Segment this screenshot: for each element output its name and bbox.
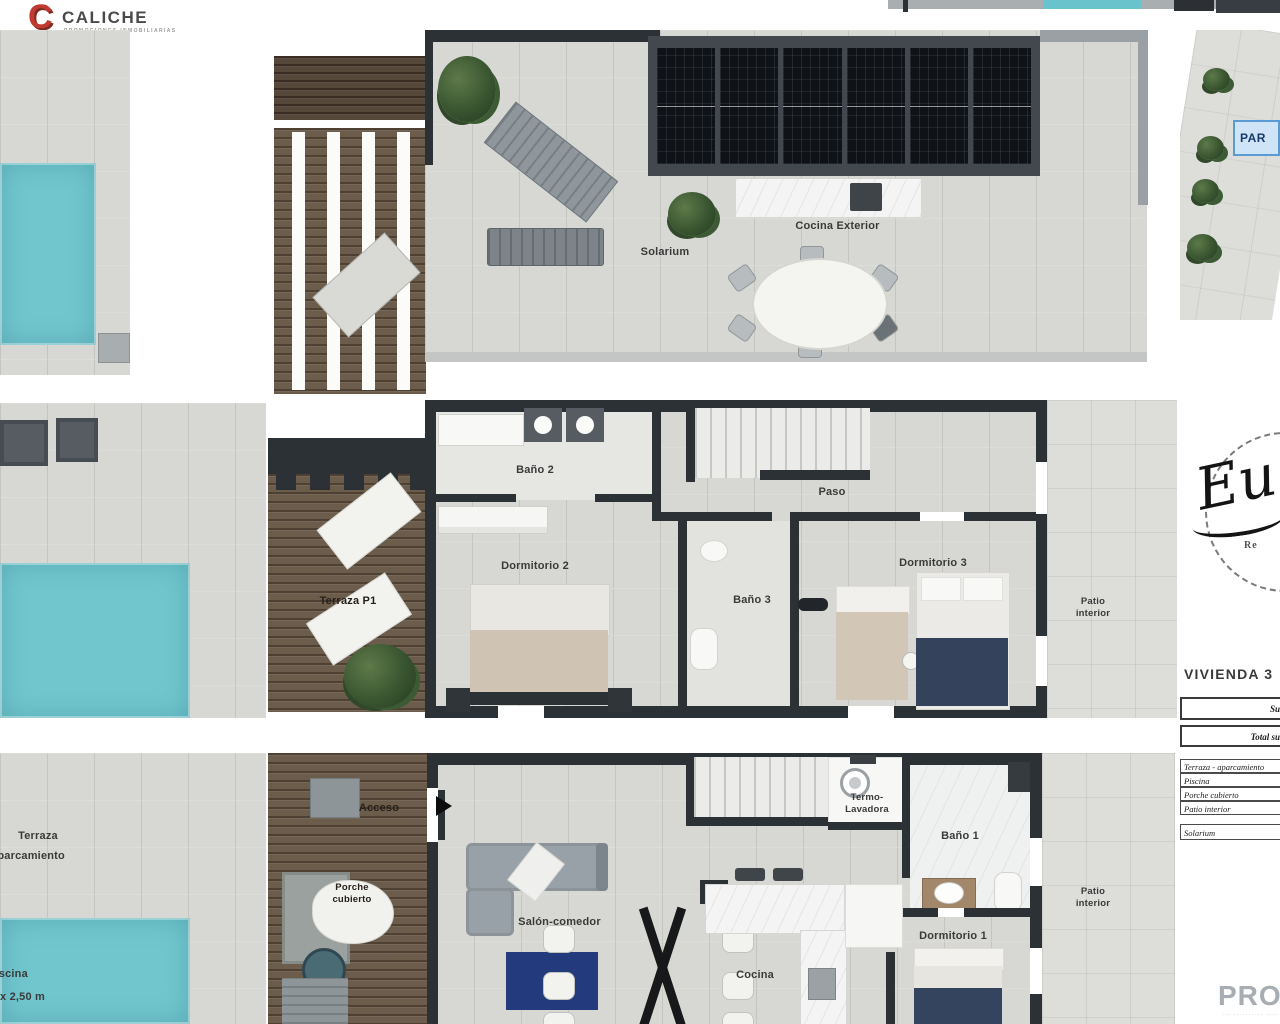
kitchen-appliance	[808, 968, 836, 1000]
bedroom2-label: Dormitorio 2	[485, 560, 585, 574]
gf-wall	[902, 908, 1030, 917]
roof-pool	[0, 163, 96, 345]
roof-wall-top	[425, 30, 660, 42]
bath2-shower	[438, 414, 524, 446]
gf-patio-door	[1030, 838, 1042, 886]
nightstand	[446, 688, 470, 712]
bed2-blanket	[470, 630, 608, 694]
roof-oval-table	[752, 258, 888, 350]
roof-plant	[438, 56, 496, 122]
kitchen-cabinet	[845, 884, 903, 948]
terrace-p1-label: Terraza P1	[303, 595, 393, 609]
gf-wall	[902, 757, 910, 829]
bed3-single-pillow	[836, 586, 910, 614]
boiler	[850, 755, 876, 764]
bath1-toilet	[994, 872, 1022, 912]
bath2-sink-basin	[576, 416, 594, 434]
ff-pool	[0, 563, 190, 718]
bedroom1-label: Dormitorio 1	[908, 930, 998, 944]
ff-wall-left	[425, 400, 436, 718]
ff-stair-wall	[686, 412, 695, 482]
ff-window	[848, 706, 894, 718]
gf-patio-door	[1030, 948, 1042, 994]
kitchen-counter	[705, 884, 845, 934]
ff-window	[498, 706, 544, 718]
pergola-slat	[327, 132, 340, 390]
ff-patio-label: Patio interior	[1058, 596, 1128, 620]
bush	[1197, 136, 1224, 160]
bedroom2-closet	[438, 506, 548, 534]
gf-wall	[886, 952, 895, 1024]
sliver-block	[1174, 0, 1214, 11]
ff-patio-door	[1036, 462, 1047, 514]
living-label: Salón-comedor	[502, 916, 617, 930]
ac-unit	[0, 420, 48, 466]
gf-patio-label: Patio interior	[1058, 886, 1128, 910]
dining-chair	[722, 1012, 754, 1024]
dining-chair	[543, 972, 575, 1000]
ff-wall	[678, 512, 687, 708]
outdoor-kitchen-label: Cocina Exterior	[775, 220, 900, 234]
solar-panel	[720, 48, 778, 164]
floorplan-sheet: C CALICHE PROMOCIONES INMOBILIARIAS PAR	[0, 0, 1280, 1024]
ff-wall	[595, 494, 654, 502]
roof-wall-left	[425, 30, 433, 165]
access-arrow-icon	[436, 796, 452, 816]
site-plan-fragment	[1180, 30, 1280, 320]
solarium-label: Solarium	[615, 246, 715, 260]
deck-plant	[344, 644, 416, 708]
washer-drum	[849, 777, 861, 789]
bath1-basin	[934, 882, 964, 904]
parapet-tooth	[310, 474, 330, 490]
area-row: Patio interior	[1180, 801, 1280, 815]
bed2-headboard	[470, 692, 608, 705]
bed2-sheet	[470, 584, 610, 636]
roof-wall-right	[1138, 30, 1148, 205]
sliver-block	[1216, 0, 1280, 13]
roof-plant	[668, 192, 716, 236]
sliver-pool	[1043, 0, 1141, 9]
pergola-roof-deck	[274, 56, 426, 120]
dining-chair	[543, 1012, 575, 1024]
area-row: Terraza - aparcamiento	[1180, 759, 1280, 773]
ff-wall	[652, 412, 661, 520]
sofa-armrest	[596, 843, 608, 891]
bush	[1192, 179, 1219, 203]
porch-bbq	[282, 978, 348, 1024]
bed3-single-body	[836, 612, 908, 700]
solar-panel	[657, 48, 715, 164]
bedroom3-bench	[798, 598, 828, 611]
solar-panel	[973, 48, 1031, 164]
bath3-toilet	[690, 628, 718, 670]
outdoor-kitchen-sink	[850, 183, 882, 211]
gf-stair-wall	[686, 817, 828, 826]
bedroom3-label: Dormitorio 3	[883, 557, 983, 571]
ff-wall	[436, 494, 516, 502]
ff-stair-rail	[760, 470, 870, 480]
gf-wall	[902, 820, 910, 878]
unit-title: VIVIENDA 3	[1184, 666, 1273, 682]
roof-wall-bottom	[425, 352, 1147, 362]
bath2-sink-basin	[534, 416, 552, 434]
solar-panel	[783, 48, 841, 164]
kitchen-stool	[773, 868, 803, 881]
solar-panel	[847, 48, 905, 164]
kitchen-label: Cocina	[726, 969, 784, 983]
pool-name-label: Piscina	[0, 968, 50, 982]
nightstand	[608, 688, 632, 712]
parapet-tooth	[276, 474, 296, 490]
gf-terrace-label-1: Terraza	[6, 830, 70, 844]
ff-patio-door	[1036, 636, 1047, 686]
area-row: Porche cubierto	[1180, 787, 1280, 801]
bed3-pillow	[963, 577, 1003, 601]
pergola-slat	[292, 132, 305, 390]
bath2-label: Baño 2	[490, 464, 580, 478]
bush	[1203, 68, 1230, 91]
pergola	[266, 50, 434, 362]
summary-box-1: Su	[1180, 697, 1280, 720]
ff-patio	[1047, 400, 1177, 718]
brand-name: CALICHE	[62, 8, 148, 28]
bush	[1187, 234, 1218, 261]
summary-box-1-text: Su	[1270, 704, 1280, 714]
ff-wall	[790, 512, 799, 708]
access-label: Acceso	[348, 802, 410, 816]
footer-brand: PROP	[1218, 980, 1280, 1012]
roof-equipment	[98, 333, 130, 363]
summary-box-2-text: Total su	[1251, 732, 1280, 742]
ff-deck-parapet	[268, 438, 432, 474]
bed1-sheet	[914, 966, 1002, 990]
driveway	[1180, 30, 1280, 320]
gf-door-gap	[938, 908, 964, 917]
gf-wall	[828, 822, 902, 830]
roof-bench	[487, 228, 604, 266]
gf-terrace-label-2: aparcamiento	[0, 850, 78, 864]
bath3-label: Baño 3	[726, 594, 778, 608]
solarium-row: Solarium	[1180, 824, 1280, 840]
gf-stairs	[694, 757, 828, 817]
porch-label: Porche cubierto	[316, 882, 388, 906]
gf-stair-wall	[686, 757, 694, 826]
bath1-label: Baño 1	[933, 830, 987, 844]
ff-door-gap	[920, 512, 964, 521]
roof-wall-right-top	[1040, 30, 1148, 42]
bed1-blanket	[914, 988, 1002, 1024]
bath1-shower-fixture	[1008, 762, 1030, 792]
footer-tagline: ··· ·········· ····	[1222, 1012, 1278, 1018]
outdoor-kitchen-counter	[735, 178, 922, 218]
hall-label: Paso	[808, 486, 856, 500]
solar-array	[648, 36, 1040, 176]
utility-label: Termo- Lavadora	[836, 792, 898, 816]
parking-label: PAR	[1240, 131, 1266, 145]
watermark-subtext: Re	[1244, 540, 1258, 551]
parapet-tooth	[344, 474, 364, 490]
kitchen-stool	[735, 868, 765, 881]
area-row: Piscina	[1180, 773, 1280, 787]
sliver-tick	[903, 0, 908, 12]
parking-label-box: PAR	[1233, 120, 1280, 156]
ff-stairs	[695, 408, 870, 478]
bed3-blanket	[916, 638, 1008, 706]
ac-unit	[56, 418, 98, 462]
summary-box-2: Total su	[1180, 725, 1280, 747]
bath3-sink	[700, 540, 728, 562]
ff-wall	[790, 512, 1036, 521]
pool-size-label: x 2,50 m	[0, 991, 70, 1005]
ff-wall	[652, 512, 772, 521]
solar-panel	[910, 48, 968, 164]
bed3-pillow	[921, 577, 961, 601]
